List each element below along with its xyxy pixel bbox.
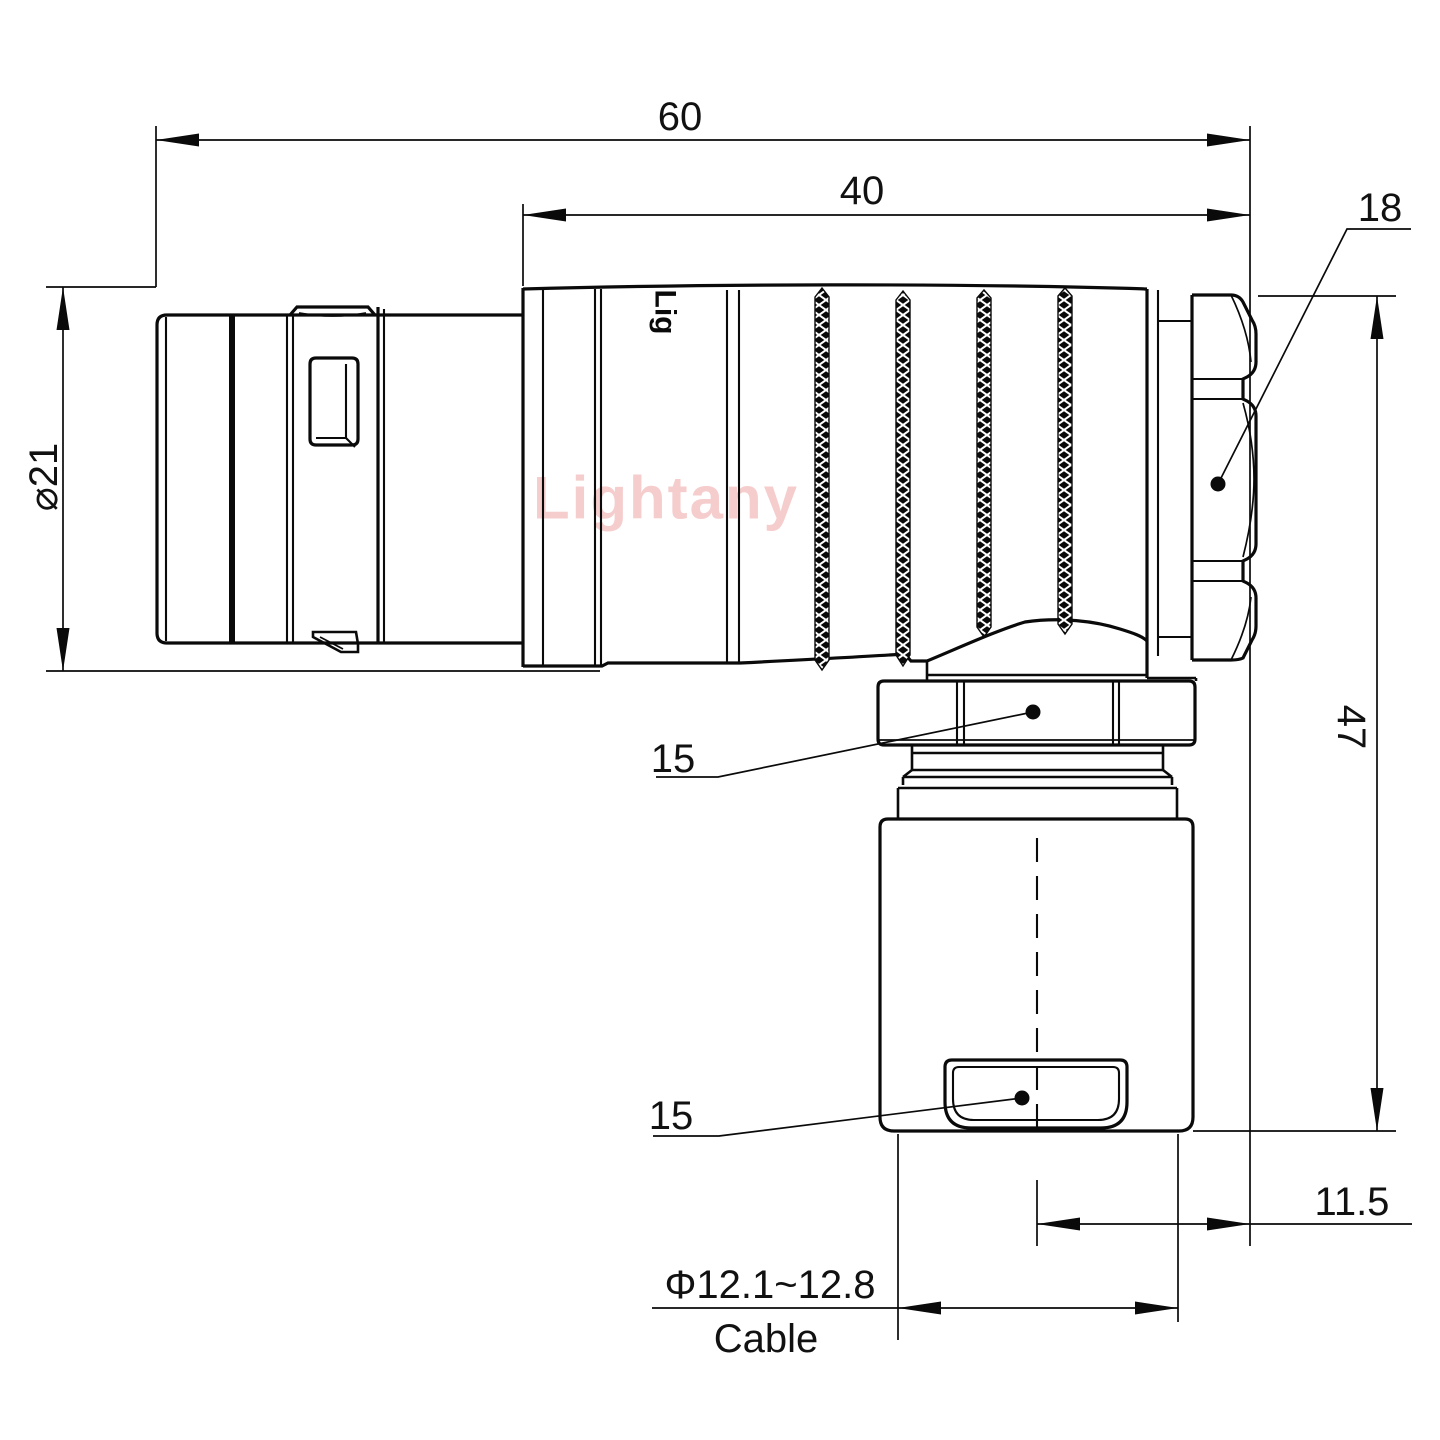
dim-backnut-label: 18: [1358, 186, 1403, 230]
drawing-page: Lightany: [0, 0, 1440, 1440]
leader-dot: [1015, 1091, 1030, 1106]
dim-cable-diameter-label: Φ12.1~12.8: [665, 1263, 876, 1307]
hex-nut: [1192, 295, 1256, 660]
dim-clamp-label: 15: [649, 1094, 694, 1138]
knurl-band: [977, 290, 991, 637]
dim-cable: Φ12.1~12.8 Cable: [652, 1263, 1178, 1361]
dim-overall-length-label: 60: [658, 95, 703, 139]
shell-groove-band: [229, 315, 235, 643]
dim-overall-length: 60: [156, 95, 1250, 147]
knurl-band: [1058, 288, 1072, 634]
washer-stack: [898, 745, 1177, 819]
dim-coupling-nut-label: 15: [651, 737, 696, 781]
dim-exit-offset: 11.5: [1037, 1180, 1412, 1231]
connector-drawing: Lightany: [0, 0, 1440, 1440]
knurl-bands: [815, 288, 1072, 670]
dim-overall-height: 47: [1329, 296, 1384, 1131]
watermark-text: Lightany: [533, 465, 799, 532]
dim-front-length: 40: [523, 169, 1250, 222]
dim-overall-height-label: 47: [1329, 705, 1373, 750]
dim-exit-offset-label: 11.5: [1315, 1180, 1390, 1224]
elbow-neck: [927, 661, 1196, 681]
knurl-band: [815, 288, 829, 670]
dim-shell-diameter-label: ⌀21: [22, 443, 66, 512]
clamp-body: [880, 819, 1193, 1142]
dim-shell-diameter: ⌀21: [22, 287, 70, 671]
leader-dot: [1211, 477, 1226, 492]
dim-cable-word-label: Cable: [714, 1317, 819, 1361]
leader-dot: [1026, 705, 1041, 720]
dim-front-length-label: 40: [840, 169, 885, 213]
body-logo-text: Lig: [649, 290, 682, 335]
latch-window: [310, 358, 358, 447]
knurl-band: [896, 291, 910, 666]
connector-side-view: Lig: [157, 285, 1256, 1142]
front-shell: [157, 307, 523, 652]
